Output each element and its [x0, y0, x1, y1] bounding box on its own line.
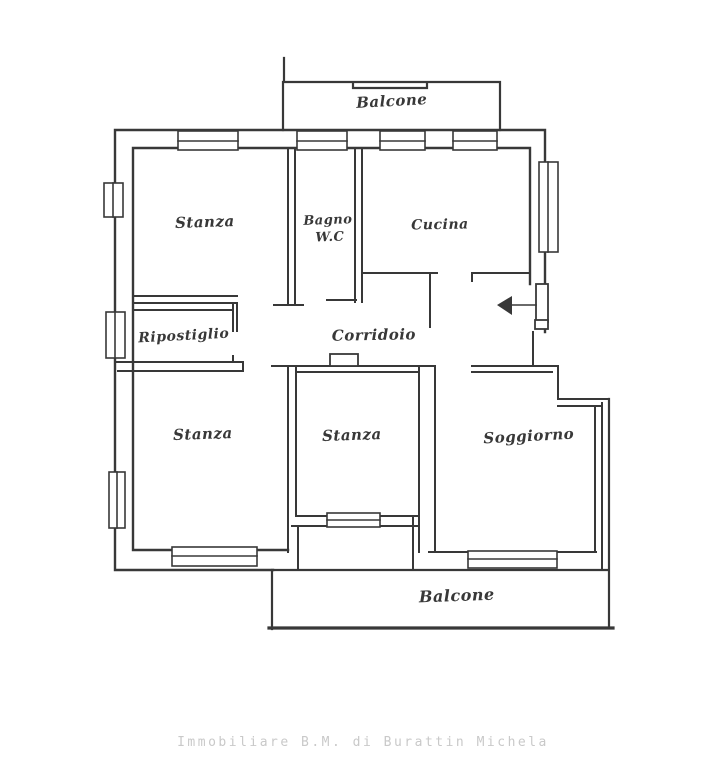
room-label-bagno-wc: W.C — [315, 229, 345, 245]
door-threshold-icon — [330, 354, 358, 366]
room-label-stanza-nw: Stanza — [175, 212, 235, 232]
room-label-stanza-s: Stanza — [322, 425, 382, 445]
room-label-balcone-bottom: Balcone — [418, 585, 495, 607]
room-label-stanza-sw: Stanza — [173, 424, 233, 444]
outer-walls — [115, 130, 545, 570]
room-label-ripostiglio: Ripostiglio — [137, 326, 230, 347]
room-label-corridoio: Corridoio — [332, 325, 416, 344]
window-symbols — [104, 131, 558, 568]
room-label-balcone-top: Balcone — [355, 90, 428, 112]
room-label-bagno: Bagno — [302, 212, 353, 229]
floor-plan-drawing: Balcone Stanza Bagno W.C Cucina Ripostig… — [0, 0, 726, 768]
room-label-soggiorno: Soggiorno — [483, 425, 575, 448]
entrance-door-jamb — [535, 320, 548, 329]
interior-walls — [115, 148, 609, 570]
agency-footer-text: Immobiliare B.M. di Burattin Michela — [0, 735, 726, 750]
room-label-cucina: Cucina — [411, 217, 469, 234]
entrance-arrow-icon — [497, 296, 536, 315]
entrance-door-icon — [536, 284, 548, 322]
floor-plan: Balcone Stanza Bagno W.C Cucina Ripostig… — [0, 0, 726, 768]
